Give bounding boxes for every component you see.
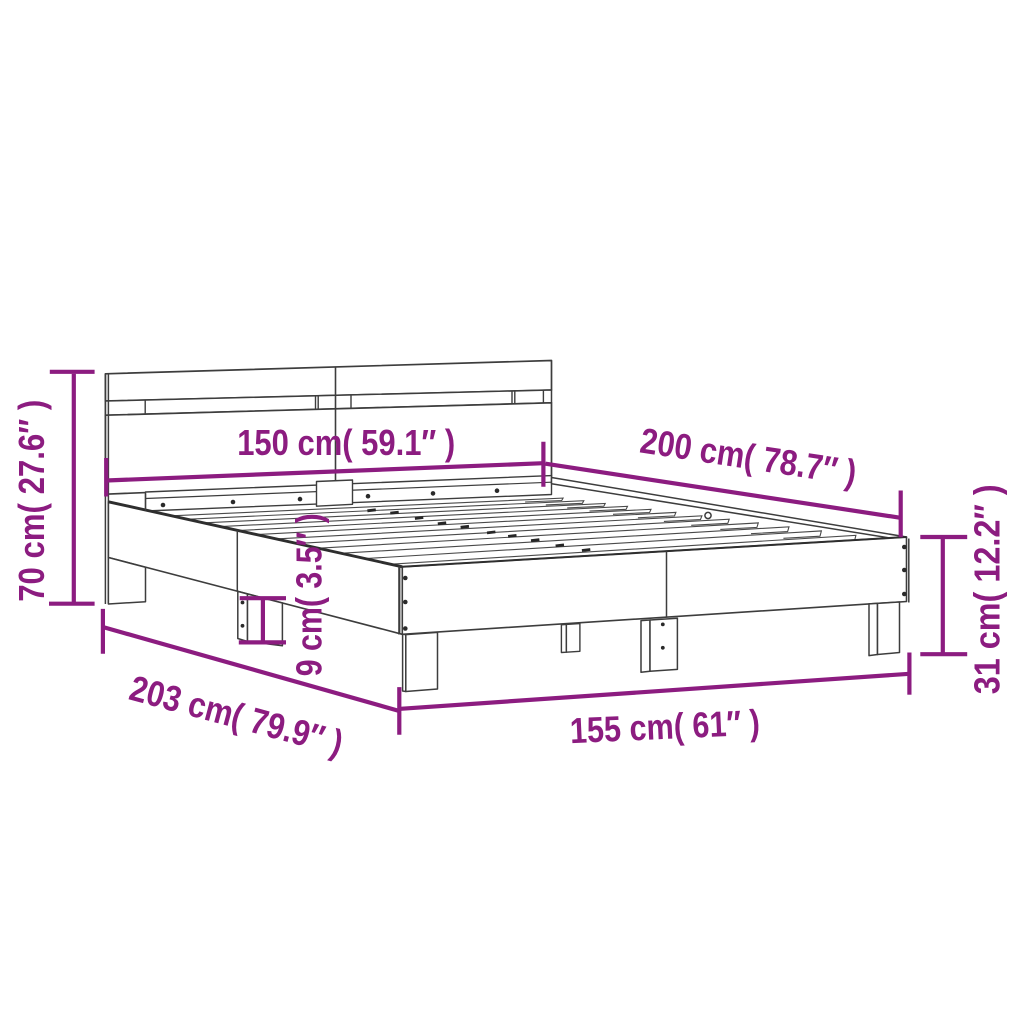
svg-text:150 cm( 59.1″ ): 150 cm( 59.1″ )	[237, 422, 455, 463]
svg-text:9 cm( 3.5″ ): 9 cm( 3.5″ )	[289, 513, 330, 676]
svg-text:31 cm( 12.2″ ): 31 cm( 12.2″ )	[967, 484, 1008, 694]
svg-text:155 cm( 61″ ): 155 cm( 61″ )	[569, 702, 761, 752]
svg-text:70 cm( 27.6″ ): 70 cm( 27.6″ )	[11, 400, 52, 602]
